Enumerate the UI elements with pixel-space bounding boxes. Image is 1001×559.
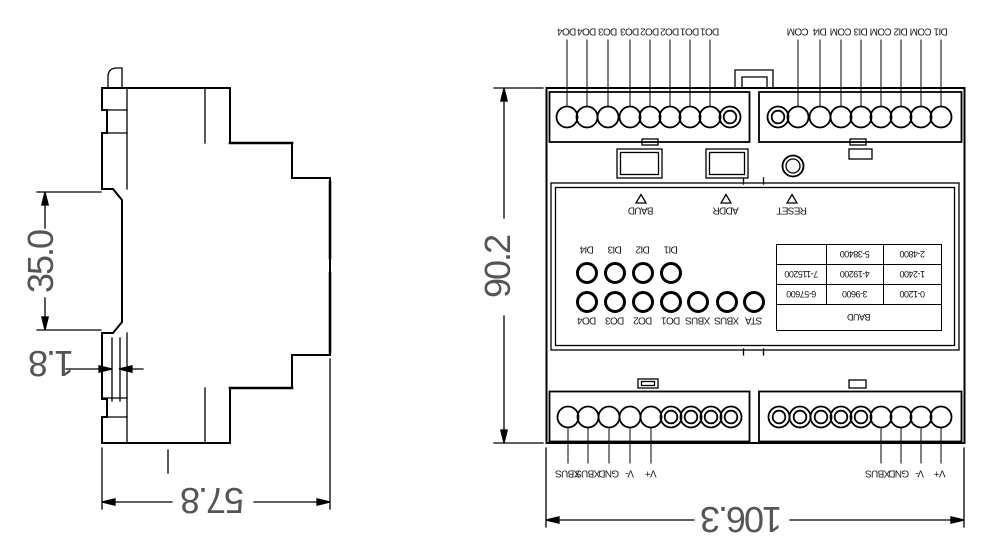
led-label: DO4 xyxy=(578,315,596,326)
baud-cell: 1-2400 xyxy=(884,265,942,285)
baud-cell: 2-4800 xyxy=(884,245,942,265)
din-clip-tab xyxy=(108,68,122,88)
indicator-window xyxy=(849,149,872,159)
terminal-label: COM xyxy=(910,26,931,37)
terminal-label: DI1 xyxy=(934,26,947,37)
config-switch-openings xyxy=(617,149,748,178)
terminal-holes-top-right xyxy=(768,107,952,128)
drawing-canvas: DO4 DO4 DO3 DO3 DO2 DO2 DO1 DO1 COM DI4 … xyxy=(0,0,1001,559)
dimension-clip-gap: 1.8 xyxy=(30,342,74,384)
reset-hole xyxy=(783,156,804,177)
led-label: XBUS xyxy=(715,315,739,326)
led-label: XBUS xyxy=(686,315,710,326)
terminal-label: V+ xyxy=(645,468,656,479)
terminal-label: COM xyxy=(830,26,851,37)
terminal-label: DO1 xyxy=(681,26,699,37)
terminal-label: GND xyxy=(889,468,909,479)
terminal-label: DO3 xyxy=(599,26,617,37)
terminal-label: DO4 xyxy=(578,26,596,37)
led-label: STA xyxy=(746,315,763,326)
control-label-addr: ADDR xyxy=(713,205,739,216)
terminal-label: XBUS xyxy=(866,468,890,479)
baud-table-header: BAUD xyxy=(777,305,942,331)
dimension-front-width: 106.3 xyxy=(702,498,782,540)
dimension-front-height: 90.2 xyxy=(477,236,519,298)
led-label: DO3 xyxy=(606,315,624,326)
terminal-label: DO2 xyxy=(641,26,659,37)
baud-table: BAUD 0-1200 3-9600 6-57600 1-2400 4-1920… xyxy=(776,244,942,331)
baud-cell xyxy=(777,245,827,265)
control-label-reset: RESET xyxy=(777,205,807,216)
led-label: DI4 xyxy=(580,244,593,255)
led-label: DI2 xyxy=(636,244,649,255)
terminal-label: DI2 xyxy=(894,26,907,37)
led-label: DI1 xyxy=(664,244,677,255)
terminal-label: GND xyxy=(599,468,619,479)
baud-cell: 7-115200 xyxy=(777,265,827,285)
terminal-label: DO4 xyxy=(558,26,576,37)
terminal-label: V+ xyxy=(934,468,945,479)
led-label: DO2 xyxy=(634,315,652,326)
top-tab xyxy=(735,70,773,88)
baud-cell: 6-57600 xyxy=(777,285,827,305)
terminal-label: DI3 xyxy=(854,26,867,37)
terminal-holes-bottom-right xyxy=(769,407,952,428)
led-label: DO1 xyxy=(662,315,680,326)
side-view-dimensions xyxy=(37,192,330,509)
terminal-label: XBUS xyxy=(576,468,600,479)
led-row-di xyxy=(578,264,681,283)
baud-cell: 0-1200 xyxy=(884,285,942,305)
terminal-label: V- xyxy=(626,468,634,479)
terminal-label: DO2 xyxy=(661,26,679,37)
terminal-label: COM xyxy=(787,26,808,37)
terminal-label: V- xyxy=(916,468,924,479)
baud-cell: 5-38400 xyxy=(827,245,884,265)
baud-cell: 4-19200 xyxy=(827,265,884,285)
baud-cell: 3-9600 xyxy=(827,285,884,305)
terminal-label: DO1 xyxy=(701,26,719,37)
terminal-holes-top-left xyxy=(557,107,741,128)
led-row-do xyxy=(578,293,764,312)
marker-triangles xyxy=(636,195,797,204)
led-label: DI3 xyxy=(608,244,621,255)
side-view-profile xyxy=(102,68,330,473)
dimension-side-depth: 57.8 xyxy=(182,479,244,521)
terminal-label: COM xyxy=(870,26,891,37)
terminal-label: DI4 xyxy=(813,26,826,37)
terminal-label: DO3 xyxy=(621,26,639,37)
dimension-side-height: 35.0 xyxy=(20,231,62,293)
control-label-baud: BAUD xyxy=(629,205,654,216)
terminal-holes-bottom-left xyxy=(558,407,742,428)
terminal-strip-bottom-left xyxy=(550,392,750,442)
